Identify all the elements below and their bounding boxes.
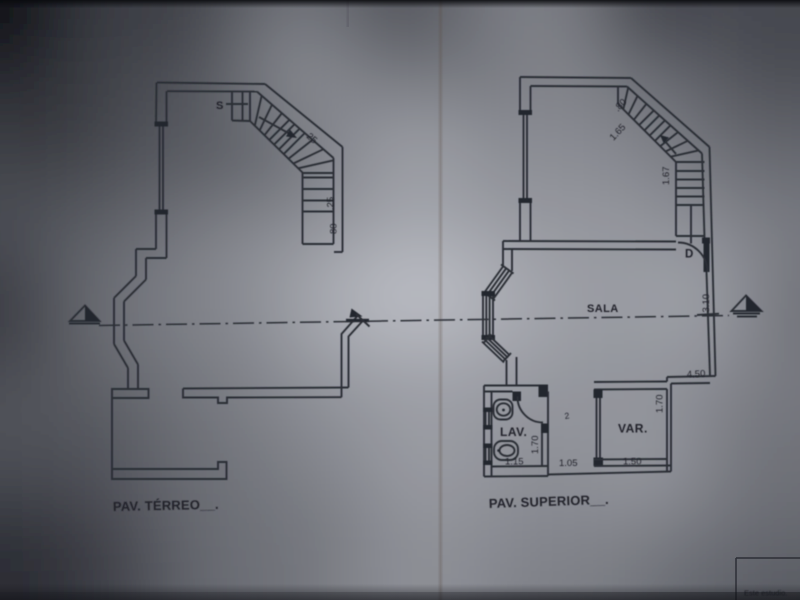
svg-text:.25: .25 bbox=[326, 197, 337, 210]
svg-text:1.50: 1.50 bbox=[623, 457, 642, 468]
svg-text:3.10: 3.10 bbox=[701, 294, 712, 313]
svg-text:1.05: 1.05 bbox=[559, 458, 578, 469]
svg-text:1.15: 1.15 bbox=[505, 457, 524, 468]
svg-text:80: 80 bbox=[329, 223, 340, 234]
svg-text:LAV.: LAV. bbox=[500, 425, 527, 439]
svg-text:1.67: 1.67 bbox=[661, 167, 672, 186]
svg-text:1.70: 1.70 bbox=[530, 436, 541, 455]
svg-text:VAR.: VAR. bbox=[618, 422, 648, 436]
svg-text:PAV. TÉRREO__.: PAV. TÉRREO__. bbox=[113, 497, 219, 514]
svg-text:S: S bbox=[216, 100, 223, 112]
svg-text:4.50: 4.50 bbox=[687, 369, 706, 381]
svg-text:D: D bbox=[685, 249, 693, 261]
svg-text:SALA: SALA bbox=[587, 303, 619, 315]
svg-text:1.70: 1.70 bbox=[655, 395, 666, 414]
